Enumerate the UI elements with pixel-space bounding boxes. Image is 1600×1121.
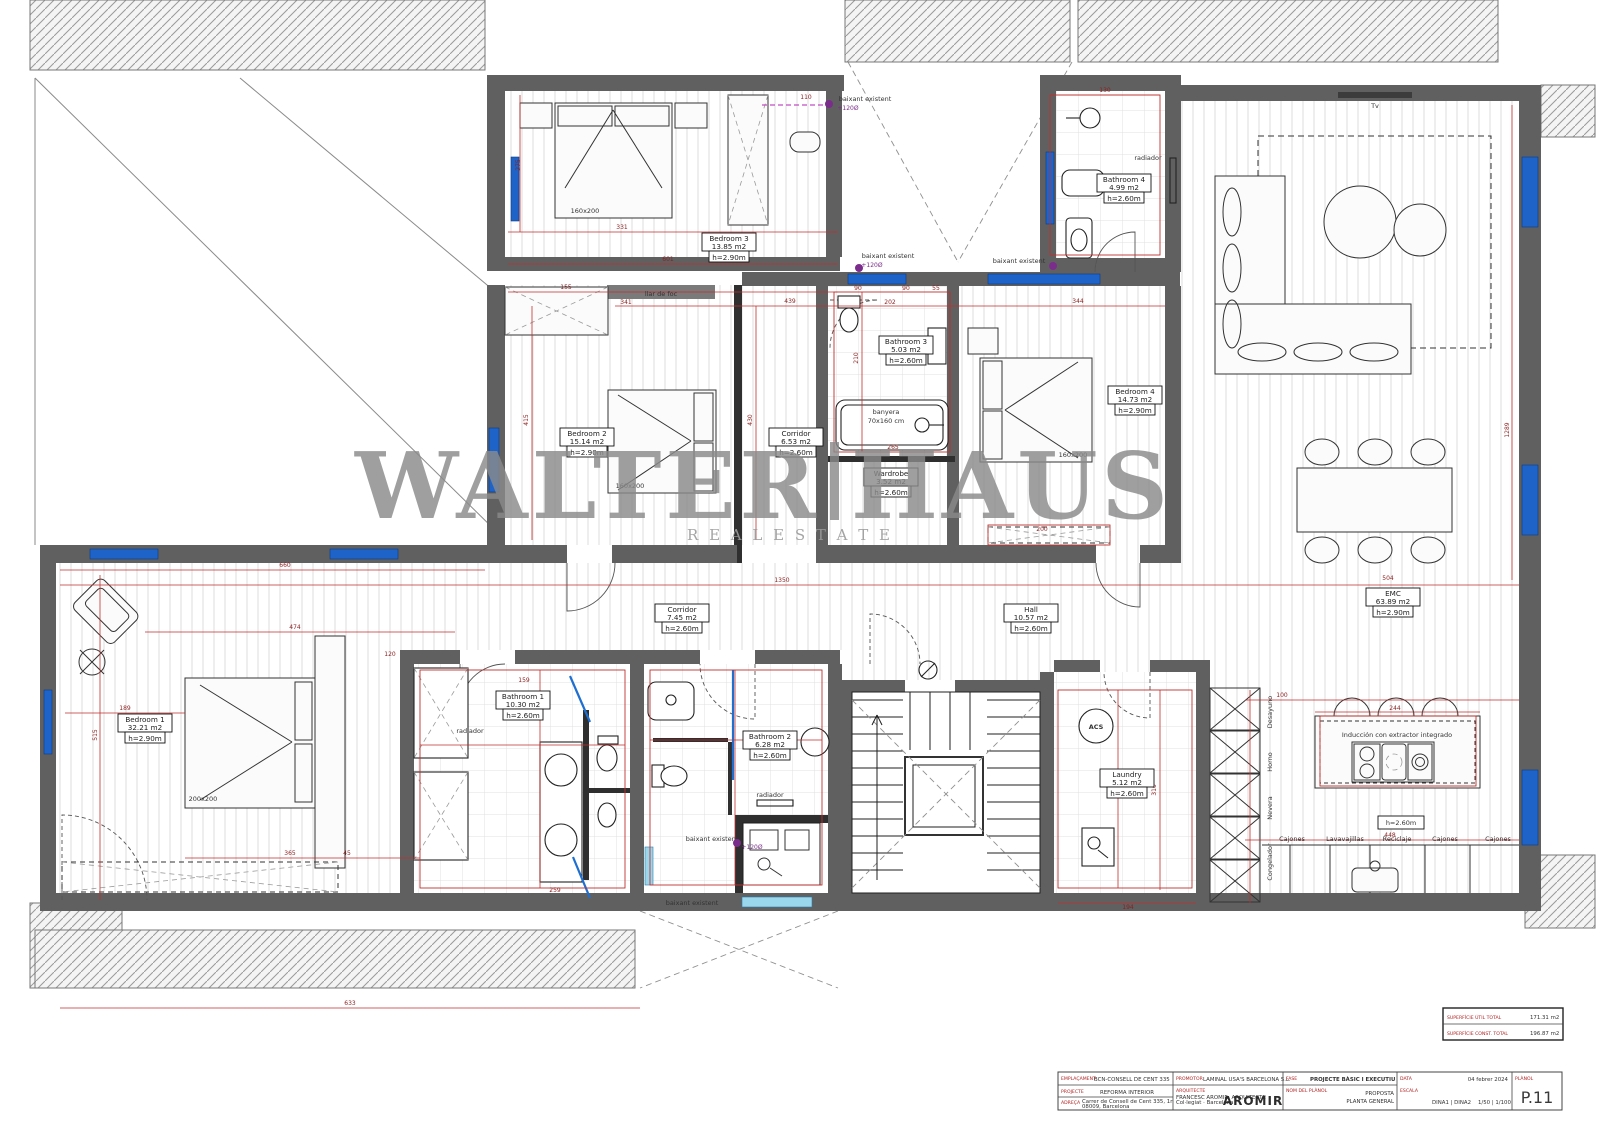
room-area: 4.99 m2 [1109, 183, 1139, 192]
drainpipe-label: baixant existent [686, 835, 739, 843]
work-label: PROJECTE [1061, 1089, 1084, 1095]
dim: 55 [932, 285, 940, 292]
drainpipe-size: +120Ø [837, 105, 858, 112]
room-height: h=2.60m [889, 356, 923, 365]
tv-label: Tv [1370, 102, 1379, 110]
dim: 159 [518, 677, 530, 684]
scale-label: ESCALA [1400, 1088, 1419, 1094]
breakfast-label: Desayuno [1266, 696, 1274, 728]
dim: 504 [1382, 575, 1394, 582]
drainpipe-label: baixant existent [993, 257, 1046, 265]
room-area: 5.03 m2 [891, 345, 921, 354]
radiator-label: radiador [456, 727, 484, 735]
room-area: 6.28 m2 [755, 740, 785, 749]
room-label-bathroom1: Bathroom 1 10.30 m2 h=2.60m [496, 691, 550, 720]
floor-plan-sheet: 331 110 601 275 155 341 439 415 430 90 9… [0, 0, 1600, 1121]
radiator-label: radiador [756, 791, 784, 799]
phase-value: PROJECTE BÀSIC I EXECUTIU [1310, 1076, 1395, 1083]
freezer-label: Congelador [1266, 843, 1274, 881]
area-const-value: 196.87 m2 [1530, 1031, 1559, 1037]
watermark-word2: HAUS [851, 432, 1172, 540]
dim: 515 [92, 729, 99, 741]
title-block: SUPERFÍCIE ÚTIL TOTAL 171.31 m2 SUPERFÍC… [1058, 1008, 1563, 1110]
plan-name-label: NOM DEL PLÀNOL [1286, 1087, 1328, 1094]
bathtub-label: banyera [873, 408, 900, 416]
room-height: h=2.60m [1107, 194, 1141, 203]
room-height: h=2.90m [128, 734, 162, 743]
room-height: h=2.90m [1118, 406, 1152, 415]
drainpipe-icon [855, 264, 863, 272]
room-area: 13.85 m2 [712, 242, 746, 251]
dim: 130 [1099, 87, 1111, 94]
dim: 660 [279, 562, 291, 569]
room-label-hall: Hall 10.57 m2 h=2.60m [1004, 604, 1058, 633]
dishwasher-label: Lavavajillas [1326, 835, 1364, 843]
room-label-emc: EMC 63.89 m2 h=2.90m [1366, 588, 1420, 617]
area-util-value: 171.31 m2 [1530, 1015, 1559, 1021]
address-label: ADREÇA [1061, 1100, 1081, 1106]
dim: 194 [1122, 904, 1134, 911]
plan-name-line1: PROPOSTA [1365, 1091, 1394, 1097]
staircase [852, 692, 1040, 893]
site-value: BCN-CONSELL DE CENT 335 [1094, 1077, 1170, 1083]
dim: 633 [344, 1000, 356, 1007]
room-area: 5.12 m2 [1112, 778, 1142, 787]
dim: 365 [284, 850, 296, 857]
room-height: h=2.90m [712, 253, 746, 262]
room-height: h=2.60m [665, 624, 699, 633]
scales-value: 1/50 | 1/100 [1478, 1100, 1511, 1106]
dining-furniture [1297, 439, 1452, 563]
induction-label: Inducción con extractor integrado [1342, 731, 1452, 739]
drainpipe-size: +120Ø [861, 262, 882, 269]
dim: 155 [560, 284, 572, 291]
dim: 120 [384, 651, 396, 658]
bed-size: 160x200 [571, 207, 600, 215]
dim: 344 [1072, 298, 1084, 305]
drainpipe-icon [733, 839, 741, 847]
dim: 100 [1276, 692, 1288, 699]
address-line2: 08009, Barcelona [1082, 1104, 1129, 1110]
bathtub-size: 70x160 cm [868, 417, 905, 425]
room-height: h=2.90m [1376, 608, 1410, 617]
room-area: 10.30 m2 [506, 700, 540, 709]
dim: 189 [119, 705, 131, 712]
room-label-bedroom4: Bedroom 4 14.73 m2 h=2.90m [1108, 386, 1162, 415]
formats-value: DINA1 | DINA2 [1432, 1100, 1471, 1106]
room-label-bathroom2: Bathroom 2 6.28 m2 h=2.60m [743, 731, 797, 760]
dim: 90 [902, 285, 910, 292]
room-area: 14.73 m2 [1118, 395, 1152, 404]
dim: 210 [853, 352, 860, 364]
promoter-label: PROMOTOR [1176, 1076, 1204, 1082]
room-area: 32.21 m2 [128, 723, 162, 732]
dim: 1289 [1504, 422, 1511, 437]
room-area: 63.89 m2 [1376, 597, 1410, 606]
dim: 244 [1389, 705, 1401, 712]
drainpipe-label: baixant existent [839, 95, 892, 103]
dim: 90 [854, 285, 862, 292]
watermark-subtitle: R E A L E S T A T E [687, 526, 893, 544]
drainpipe-label: baixant existent [862, 252, 915, 260]
sheet-number-label: PLÀNOL [1515, 1075, 1534, 1082]
room-height: h=2.60m [753, 751, 787, 760]
kitchen-cabinet-label: Cajones [1485, 835, 1511, 843]
oven-label: Horno [1266, 752, 1274, 772]
dim: 1350 [774, 577, 789, 584]
drainpipe-label: baixant existent [666, 899, 719, 907]
dim: 202 [884, 299, 896, 306]
drainpipe-icon [1049, 262, 1057, 270]
sheet-number: P.11 [1521, 1088, 1554, 1107]
area-util-label: SUPERFÍCIE ÚTIL TOTAL [1447, 1014, 1502, 1021]
radiator-label: radiador [1134, 154, 1162, 162]
date-value: 04 febrer 2024 [1468, 1077, 1509, 1083]
dim: 341 [620, 299, 632, 306]
room-area: 7.45 m2 [667, 613, 697, 622]
room-height: h=2.60m [1014, 624, 1048, 633]
bed-size: 200x200 [189, 795, 218, 803]
watermark-bar [830, 442, 839, 520]
dim: 110 [800, 94, 812, 101]
area-const-label: SUPERFÍCIE CONST. TOTAL [1447, 1030, 1508, 1037]
room-area: 10.57 m2 [1014, 613, 1048, 622]
dim: 430 [747, 414, 754, 426]
site-label: EMPLAÇAMENT [1061, 1076, 1096, 1082]
floor-plan-drawing: 331 110 601 275 155 341 439 415 430 90 9… [0, 0, 1600, 1121]
drainpipe-size: +120Ø [741, 844, 762, 851]
drainpipe-icon [825, 100, 833, 108]
acs-label: ACS [1089, 723, 1104, 731]
date-label: DATA [1400, 1076, 1413, 1082]
dim: 331 [616, 224, 628, 231]
plan-name-line2: PLANTA GENERAL [1346, 1099, 1394, 1105]
work-value: REFORMA INTERIOR [1100, 1090, 1154, 1096]
kitchen-cabinet-label: Cajones [1432, 835, 1458, 843]
watermark: WALTER HAUS R E A L E S T A T E [354, 432, 1172, 544]
room-label-bathroom4: Bathroom 4 4.99 m2 h=2.60m [1097, 174, 1151, 203]
watermark-word1: WALTER [354, 432, 820, 540]
dim: 275 [515, 159, 522, 171]
dim: 259 [549, 887, 561, 894]
architect-label: ARQUITECTE [1176, 1088, 1205, 1094]
fridge-label: Nevera [1266, 796, 1274, 819]
kitchen-height-label: h=2.60m [1386, 819, 1416, 827]
dim: 474 [289, 624, 301, 631]
room-label-laundry: Laundry 5.12 m2 h=2.60m [1100, 769, 1154, 798]
architect-logo: AROMIR [1223, 1094, 1283, 1108]
phase-label: FASE [1286, 1076, 1297, 1082]
kitchen-cabinet-label: Cajones [1279, 835, 1305, 843]
dim: 439 [784, 298, 796, 305]
elevator [743, 823, 820, 885]
room-label-bedroom1: Bedroom 1 32.21 m2 h=2.90m [118, 714, 172, 743]
room-height: h=2.60m [1110, 789, 1144, 798]
room-label-corridor2: Corridor 7.45 m2 h=2.60m [655, 604, 709, 633]
fireplace-label: llar de foc [645, 290, 678, 298]
room-label-bedroom3: Bedroom 3 13.85 m2 h=2.90m [702, 233, 756, 262]
promoter-value: LAMINAL USA'S BARCELONA S.L. [1203, 1077, 1291, 1083]
recycling-label: Reciclaje [1383, 835, 1412, 843]
dim: 45 [343, 850, 351, 857]
room-height: h=2.60m [506, 711, 540, 720]
dim: 601 [662, 256, 674, 263]
dim: 415 [523, 414, 530, 426]
room-label-bathroom3: Bathroom 3 5.03 m2 h=2.60m [879, 336, 933, 365]
